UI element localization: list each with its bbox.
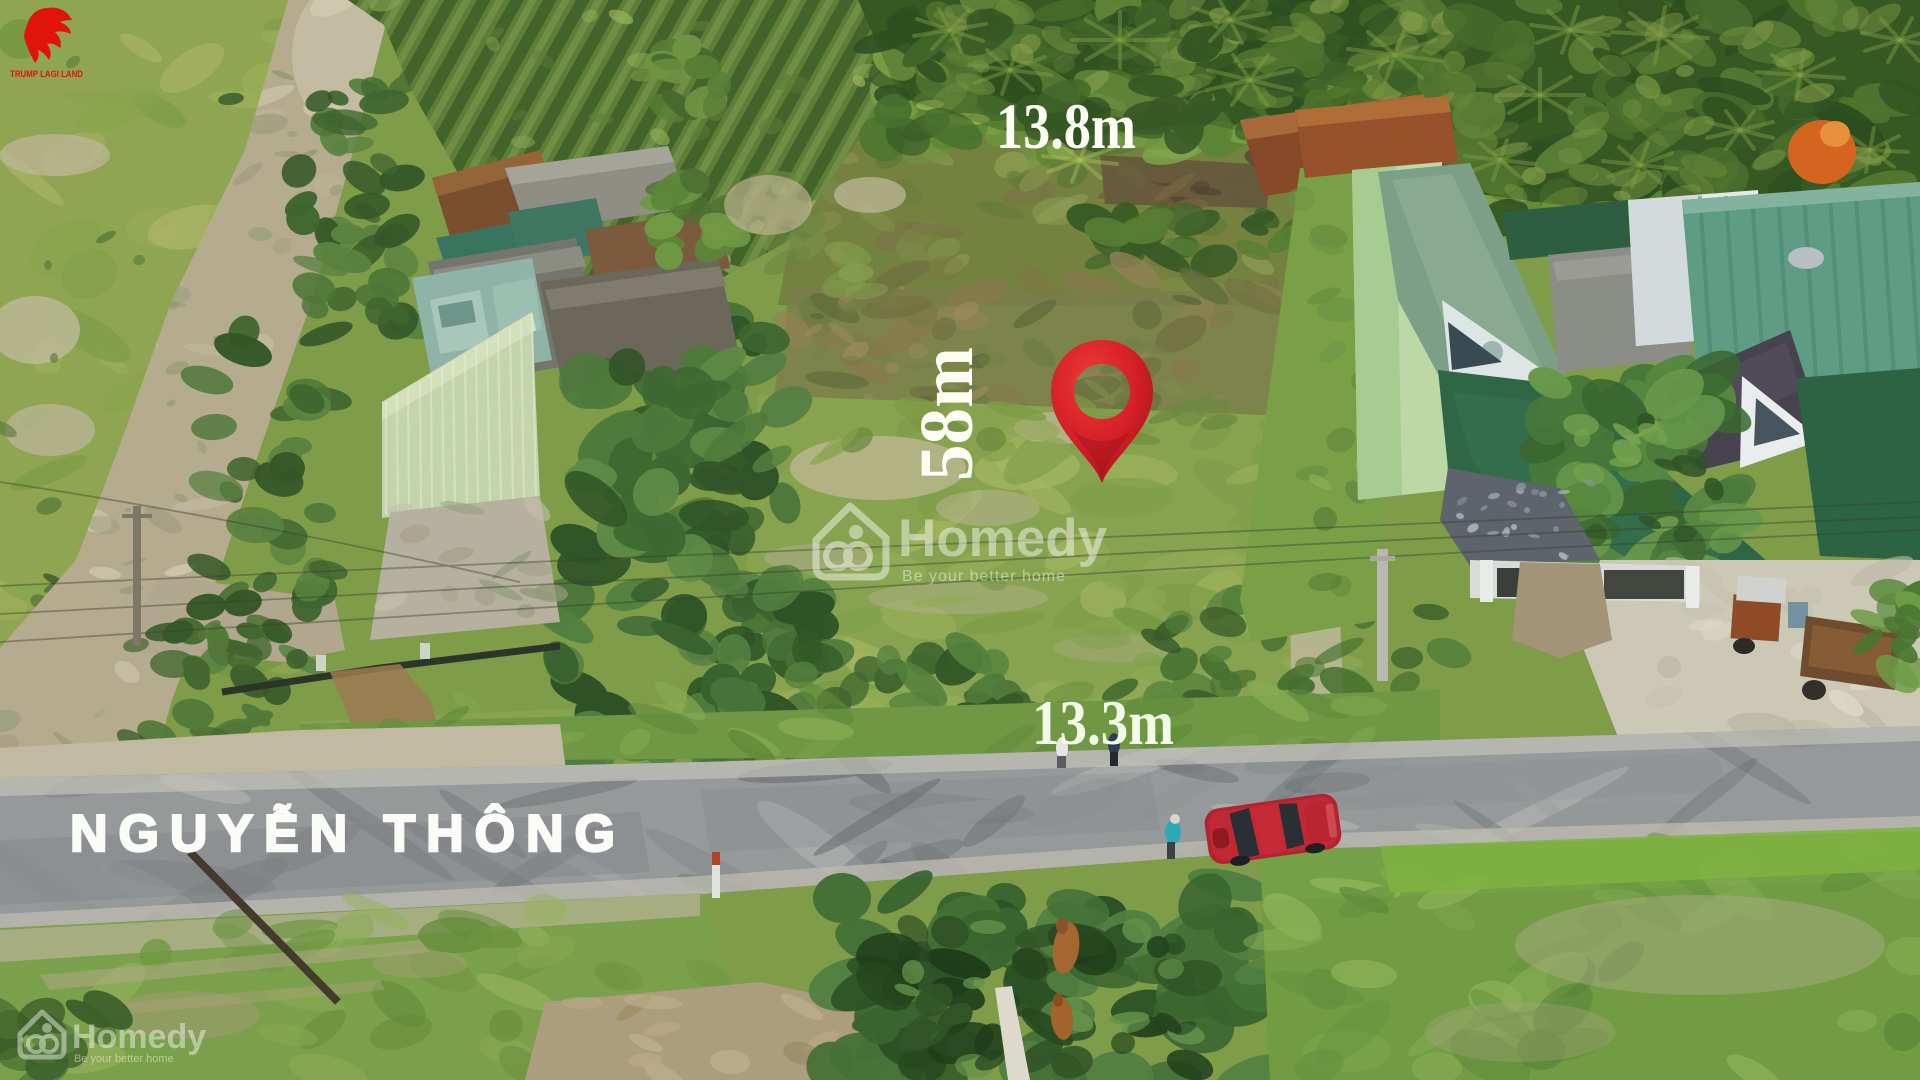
svg-text:13.8m: 13.8m xyxy=(996,91,1136,163)
svg-text:Homedy: Homedy xyxy=(72,1018,206,1056)
svg-text:13.3m: 13.3m xyxy=(1032,687,1174,758)
svg-text:Homedy: Homedy xyxy=(898,509,1108,568)
svg-text:NGUYỄN THÔNG: NGUYỄN THÔNG xyxy=(70,804,615,863)
svg-text:Be your better home: Be your better home xyxy=(902,568,1066,585)
svg-text:TRUMP LAGI LAND: TRUMP LAGI LAND xyxy=(10,69,83,79)
svg-text:58m: 58m xyxy=(905,347,989,481)
svg-text:Be your better home: Be your better home xyxy=(74,1053,174,1065)
